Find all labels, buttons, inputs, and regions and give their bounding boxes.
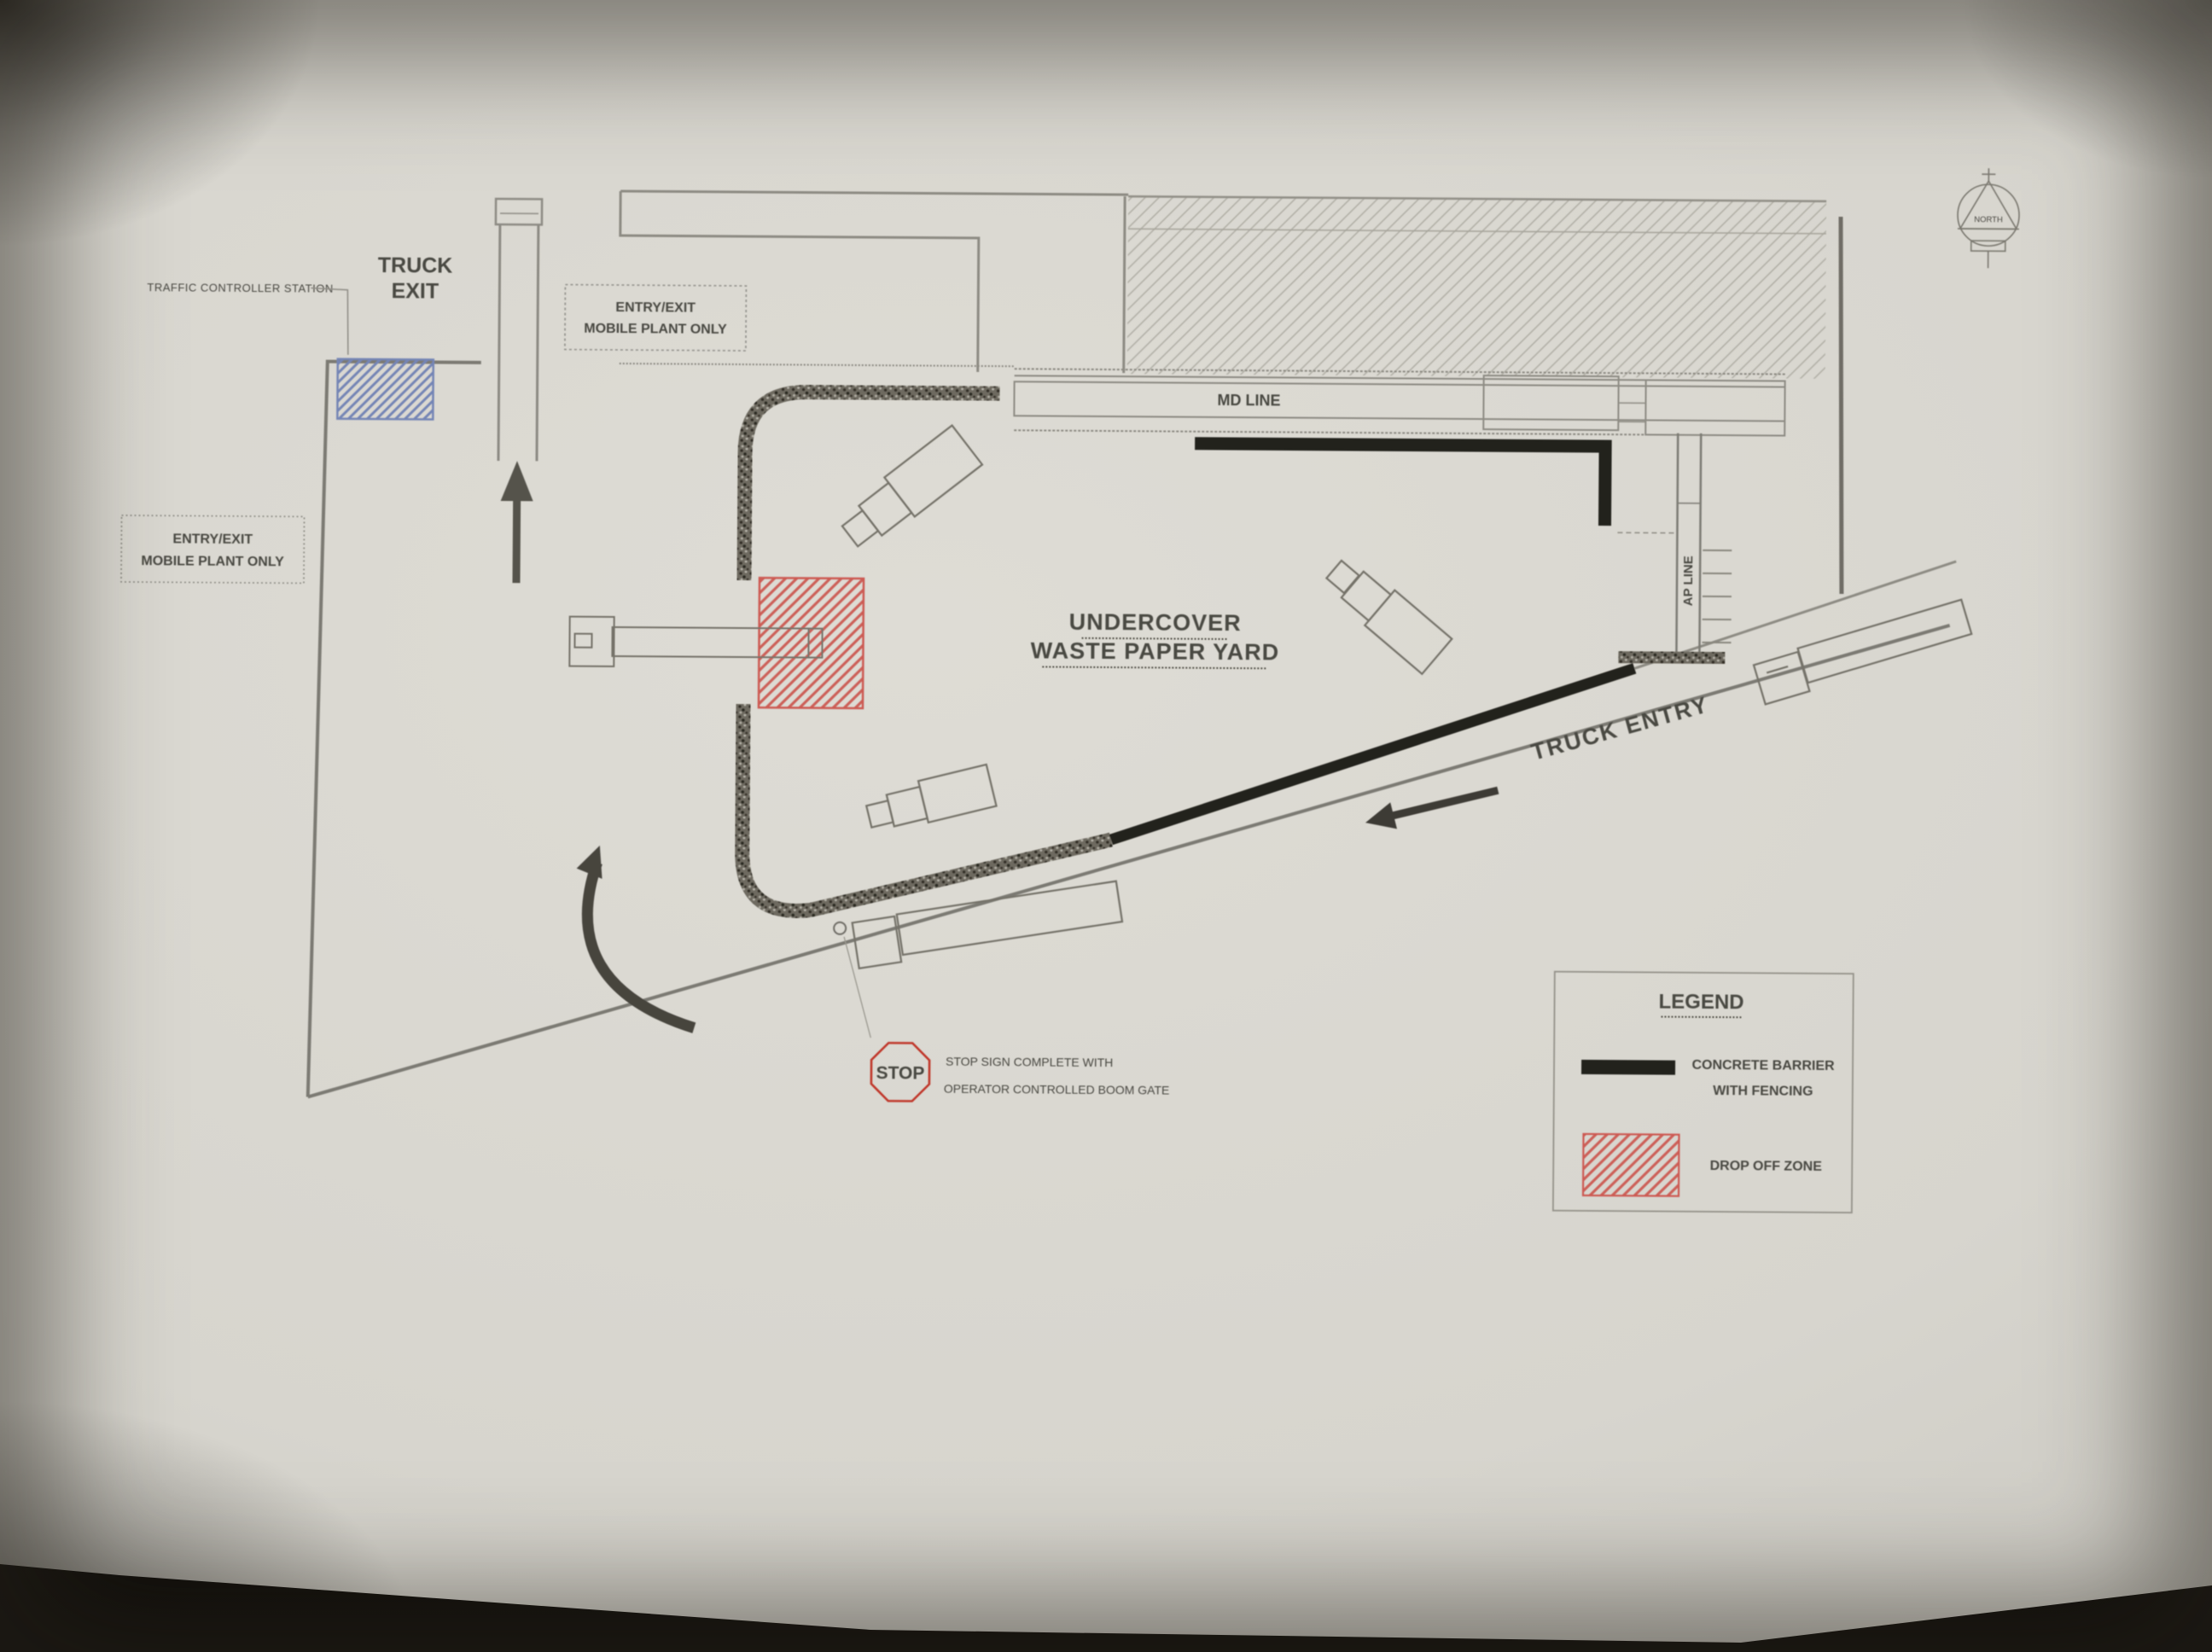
entry-exit-top-line1: ENTRY/EXIT xyxy=(615,300,696,316)
ap-line-wall xyxy=(1676,433,1732,660)
legend-label-concrete-barrier-line1: CONCRETE BARRIER xyxy=(1691,1058,1835,1073)
entry-exit-top-line2: MOBILE PLANT ONLY xyxy=(584,322,727,337)
exit-direction-arrow-icon xyxy=(500,461,533,583)
entry-truck xyxy=(1753,600,1974,705)
hatched-existing-area xyxy=(1127,196,1826,379)
road-south-edge xyxy=(308,614,1950,1108)
photo-shadow-top-right xyxy=(1854,0,2212,256)
loader-top xyxy=(835,426,982,556)
boom-gate-circle xyxy=(834,922,846,934)
drop-off-zone-area xyxy=(759,578,864,708)
road-direction-arrow-icon xyxy=(1365,789,1498,829)
stop-note: STOP SIGN COMPLETE WITH OPERATOR CONTROL… xyxy=(944,1055,1170,1097)
stop-sign-label: STOP xyxy=(876,1063,924,1083)
photo-background: TRAFFIC CONTROLLER STATION TRUCK EXIT EN… xyxy=(0,0,2212,1652)
ap-line-label: AP LINE xyxy=(1681,556,1696,606)
turning-arrow-icon xyxy=(575,846,695,1028)
truck-entry-label: TRUCK ENTRY xyxy=(1528,691,1712,765)
loader-east xyxy=(1319,551,1452,674)
md-line-label: MD LINE xyxy=(1217,392,1280,410)
site-plan-photo: { "photo": { "surface_color": "#14110e",… xyxy=(0,0,2212,1652)
stop-note-line1: STOP SIGN COMPLETE WITH xyxy=(946,1055,1113,1069)
photo-shadow-top-left xyxy=(0,0,444,341)
entry-exit-left-line2: MOBILE PLANT ONLY xyxy=(141,554,284,569)
east-boundary-line xyxy=(1838,217,1844,594)
yard-title: UNDERCOVER WASTE PAPER YARD xyxy=(1031,608,1280,668)
entry-exit-top-sign: ENTRY/EXIT MOBILE PLANT ONLY xyxy=(565,285,747,351)
concrete-barrier-north xyxy=(1194,444,1605,526)
stop-note-line2: OPERATOR CONTROLLED BOOM GATE xyxy=(944,1082,1170,1097)
traffic-controller-station-zone xyxy=(337,359,433,420)
yard-title-line2: WASTE PAPER YARD xyxy=(1031,637,1280,665)
ap-line-base-wall xyxy=(1618,657,1725,658)
legend-label-drop-off-zone: DROP OFF ZONE xyxy=(1710,1159,1823,1174)
loader-bottom xyxy=(864,765,997,835)
legend-swatch-drop-off-zone xyxy=(1583,1134,1679,1196)
entry-exit-left-sign: ENTRY/EXIT MOBILE PLANT ONLY xyxy=(121,515,305,583)
entry-exit-left-line1: ENTRY/EXIT xyxy=(172,532,253,547)
legend-label-concrete-barrier-line2: WITH FENCING xyxy=(1713,1084,1813,1099)
legend: LEGEND CONCRETE BARRIER WITH FENCING DRO… xyxy=(1553,972,1854,1213)
legend-swatch-concrete-barrier xyxy=(1581,1060,1675,1075)
north-boundary-steps xyxy=(620,191,1128,373)
yard-title-line1: UNDERCOVER xyxy=(1069,609,1242,636)
legend-title: LEGEND xyxy=(1658,991,1743,1015)
md-line-machine xyxy=(1014,369,1784,435)
truck-exit-lane xyxy=(494,199,542,461)
west-boundary-line xyxy=(308,361,481,1097)
stop-sign: STOP xyxy=(871,1043,929,1101)
